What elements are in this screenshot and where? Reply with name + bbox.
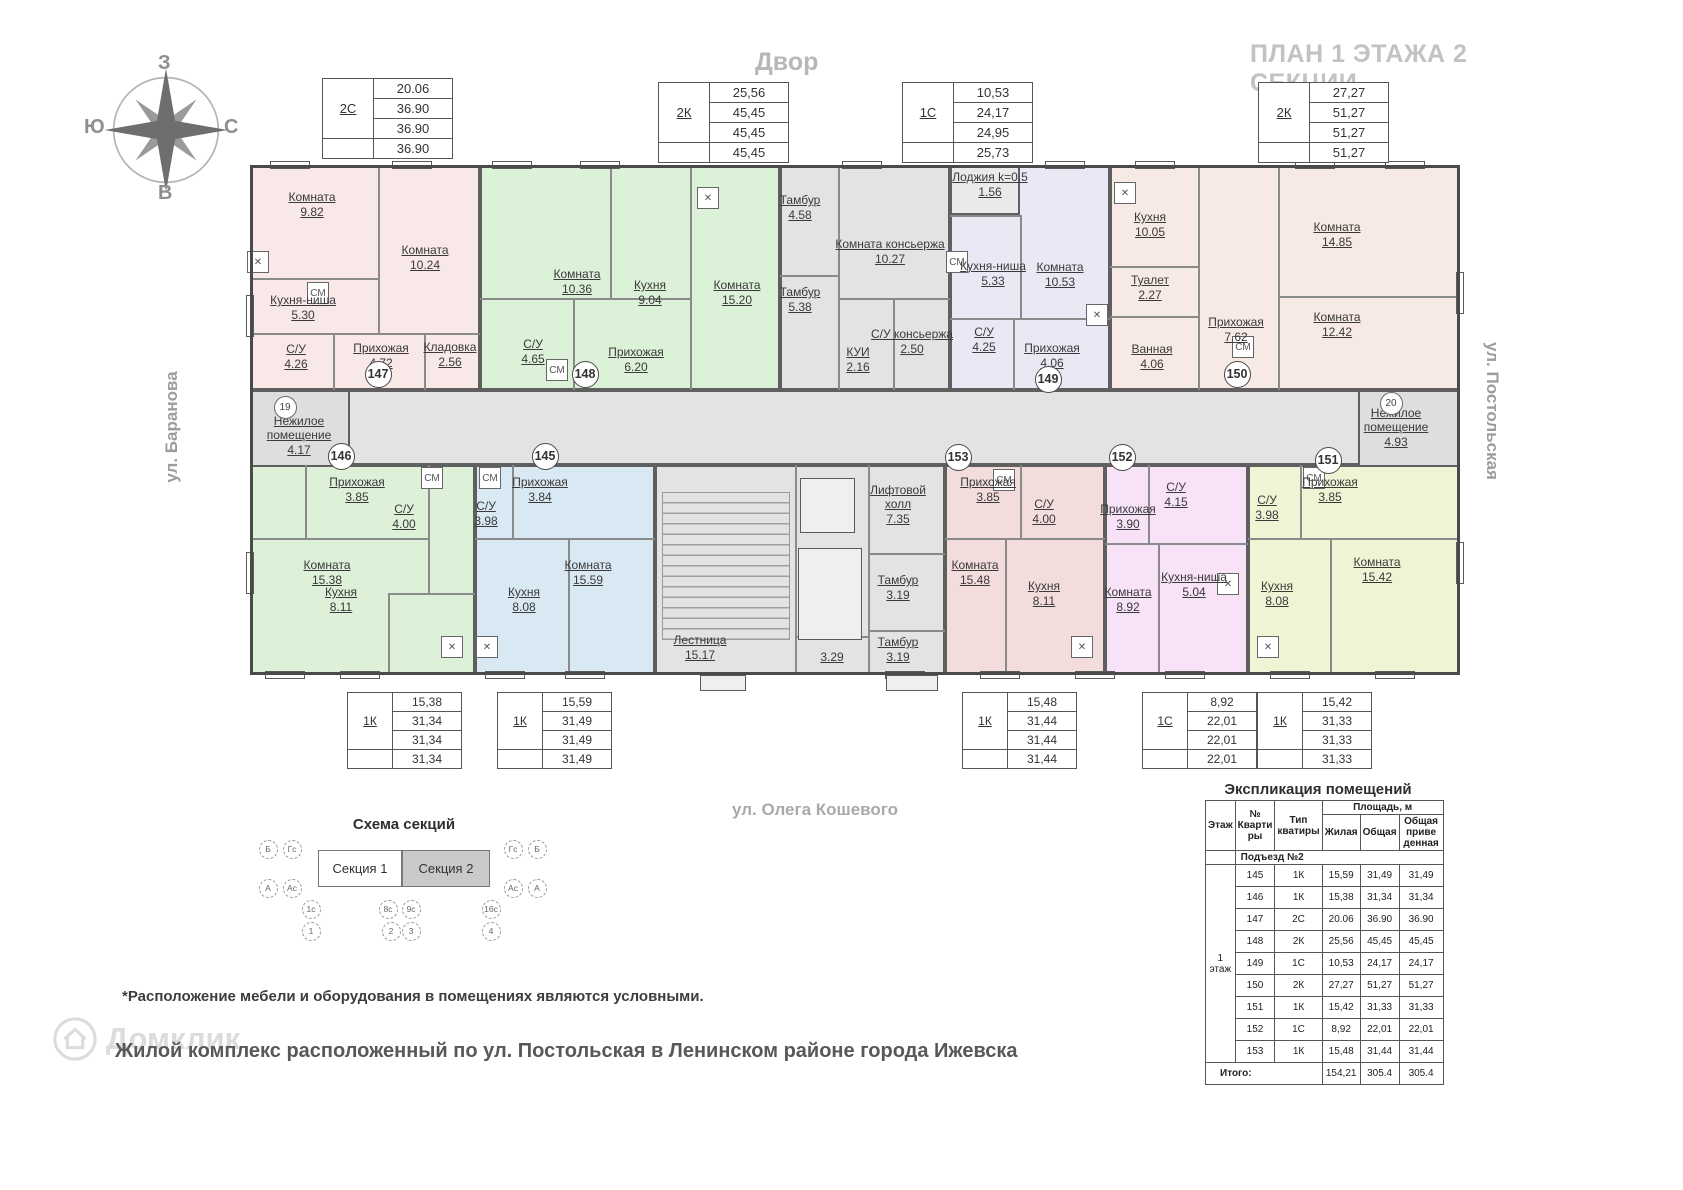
axis-circle-8с: 8с xyxy=(379,900,398,919)
partition-wall xyxy=(945,538,1105,540)
partition-wall xyxy=(1278,296,1460,298)
room-label: Прихожая3.84 xyxy=(465,475,615,504)
room-label: Комната15.42 xyxy=(1302,555,1452,584)
window-mark xyxy=(492,161,532,169)
explication-col-reduced: Общая приве денная xyxy=(1399,815,1443,851)
apartment-number-badge: 147 xyxy=(365,361,392,388)
schema-title: Схема секций xyxy=(318,816,490,833)
window-mark xyxy=(392,161,432,169)
room-label: Комната14.85 xyxy=(1262,220,1412,249)
partition-wall xyxy=(1105,543,1248,545)
axis-circle-Гс: Гс xyxy=(283,840,302,859)
schema-section-2: Секция 2 xyxy=(402,850,490,887)
room-number-badge: 20 xyxy=(1380,392,1403,415)
axis-circle-2: 2 xyxy=(382,922,401,941)
room-label: Тамбур5.38 xyxy=(725,285,875,314)
explication-total-area: 305.4 xyxy=(1360,1063,1399,1085)
apartment-number-badge: 151 xyxy=(1315,447,1342,474)
area-table-1К: 1К15,3831,3431,3431,34 xyxy=(347,692,462,769)
explication-total-living: 154,21 xyxy=(1322,1063,1360,1085)
axis-circle-Б: Б xyxy=(528,840,547,859)
partition-wall xyxy=(795,465,797,675)
axis-circle-1с: 1с xyxy=(302,900,321,919)
apartment-number-badge: 149 xyxy=(1035,366,1062,393)
room-label: Комната15.38 xyxy=(252,558,402,587)
axis-circle-3: 3 xyxy=(402,922,421,941)
room-number-badge: 19 xyxy=(274,396,297,419)
window-mark xyxy=(1385,161,1425,169)
window-mark xyxy=(980,671,1020,679)
axis-circle-16с: 16с xyxy=(482,900,501,919)
apartment-number-badge: 153 xyxy=(945,444,972,471)
window-mark xyxy=(1270,671,1310,679)
partition-wall xyxy=(250,538,430,540)
partition-wall xyxy=(1248,538,1460,540)
stove-icon: ✕ xyxy=(247,251,269,273)
window-mark xyxy=(485,671,525,679)
axis-circle-9с: 9с xyxy=(402,900,421,919)
project-title: Жилой комплекс расположенный по ул. Пост… xyxy=(115,1040,1018,1063)
explication-row-151: 1511К15,4231,3331,33 xyxy=(1206,997,1444,1019)
window-mark xyxy=(340,671,380,679)
partition-wall xyxy=(250,278,380,280)
room-label: Лоджия k=0.51.56 xyxy=(915,170,1065,199)
window-mark xyxy=(1045,161,1085,169)
explication-entrance-row: Подъезд №2 xyxy=(1235,851,1443,865)
partition-wall xyxy=(868,630,945,632)
explication-total-row: Итого: 154,21 305.4 305.4 xyxy=(1206,1063,1444,1085)
explication-col-living: Жилая xyxy=(1322,815,1360,851)
room-label: Ванная4.06 xyxy=(1077,342,1227,371)
apartment-number-badge: 145 xyxy=(532,443,559,470)
explication-row-147: 1472С20.0636.9036.90 xyxy=(1206,909,1444,931)
partition-wall xyxy=(475,538,655,540)
partition-wall xyxy=(868,553,945,555)
area-table-1К: 1К15,4831,4431,4431,44 xyxy=(962,692,1077,769)
stove-icon: ✕ xyxy=(697,187,719,209)
structure-box xyxy=(886,675,938,691)
explication-total-reduced: 305.4 xyxy=(1399,1063,1443,1085)
area-table-2К: 2К27,2751,2751,2751,27 xyxy=(1258,82,1389,163)
area-table-1К: 1К15,4231,3331,3331,33 xyxy=(1257,692,1372,769)
window-mark xyxy=(1456,542,1464,584)
axis-circle-А: А xyxy=(528,879,547,898)
axis-circle-Б: Б xyxy=(259,840,278,859)
explication-row-145: 1 этаж1451К15,5931,4931,49 xyxy=(1206,865,1444,887)
stove-icon: ✕ xyxy=(1114,182,1136,204)
area-table-1С: 1С8,9222,0122,0122,01 xyxy=(1142,692,1257,769)
explication-row-153: 1531К15,4831,4431,44 xyxy=(1206,1041,1444,1063)
structure-box xyxy=(700,675,746,691)
window-mark xyxy=(270,161,310,169)
axis-circle-1: 1 xyxy=(302,922,321,941)
axis-circle-А: А xyxy=(259,879,278,898)
axis-circle-4: 4 xyxy=(482,922,501,941)
room-label: Комната15.59 xyxy=(513,558,663,587)
axis-circle-Ас: Ас xyxy=(283,879,302,898)
window-mark xyxy=(1165,671,1205,679)
explication-total-label: Итого: xyxy=(1206,1063,1323,1085)
area-table-2С: 2С20.0636.9036.9036.90 xyxy=(322,78,453,159)
room-label: Лестница15.17 xyxy=(625,633,775,662)
room-label: Комната10.24 xyxy=(350,243,500,272)
stove-icon: ✕ xyxy=(476,636,498,658)
area-table-2К: 2К25,5645,4545,4545,45 xyxy=(658,82,789,163)
explication-col-total: Общая xyxy=(1360,815,1399,851)
apartment-number-badge: 152 xyxy=(1109,444,1136,471)
room-label: Комната12.42 xyxy=(1262,310,1412,339)
room-label: Кухня8.08 xyxy=(449,585,599,614)
explication-row-148: 1482К25,5645,4545,45 xyxy=(1206,931,1444,953)
stove-icon: ✕ xyxy=(1257,636,1279,658)
window-mark xyxy=(580,161,620,169)
apartment-number-badge: 150 xyxy=(1224,361,1251,388)
stove-icon: ✕ xyxy=(1071,636,1093,658)
window-mark xyxy=(1075,671,1115,679)
explication-row-149: 1491С10,5324,1724,17 xyxy=(1206,953,1444,975)
explication-col-area-group: Площадь, м xyxy=(1322,801,1443,815)
room-label: Кухня8.11 xyxy=(266,585,416,614)
apartment-number-badge: 148 xyxy=(572,361,599,388)
furniture-note: *Расположение мебели и оборудования в по… xyxy=(122,988,704,1005)
explication-table: Этаж № Кварти ры Тип кватиры Площадь, м … xyxy=(1205,800,1444,1085)
explication-col-floor: Этаж xyxy=(1206,801,1236,851)
window-mark xyxy=(1135,161,1175,169)
unit-region-corridor xyxy=(250,390,1460,465)
explication-row-150: 1502К27,2751,2751,27 xyxy=(1206,975,1444,997)
room-label: Комната8.92 xyxy=(1053,585,1203,614)
staircase xyxy=(662,492,790,640)
window-mark xyxy=(265,671,305,679)
room-label: Комната9.82 xyxy=(237,190,387,219)
axis-circle-Гс: Гс xyxy=(504,840,523,859)
explication-title: Экспликация помещений xyxy=(1205,781,1431,798)
explication-row-146: 1461К15,3831,3431,34 xyxy=(1206,887,1444,909)
room-label: Прихожая3.85 xyxy=(282,475,432,504)
window-mark xyxy=(565,671,605,679)
window-mark xyxy=(842,161,882,169)
partition-wall xyxy=(950,215,1020,217)
schema-section-1: Секция 1 xyxy=(318,850,402,887)
floorplan-page: Двор ПЛАН 1 ЭТАЖА 2 СЕКЦИИ З С В Ю ул. Б… xyxy=(0,0,1683,1190)
area-table-1С: 1С10,5324,1724,9525,73 xyxy=(902,82,1033,163)
room-label: Кухня10.05 xyxy=(1075,210,1225,239)
room-label: Туалет2.27 xyxy=(1075,273,1225,302)
stove-icon: ✕ xyxy=(1086,304,1108,326)
window-mark xyxy=(1375,671,1415,679)
stove-icon: ✕ xyxy=(441,636,463,658)
room-label: С/У3.98 xyxy=(1192,493,1342,522)
explication-col-type: Тип кватиры xyxy=(1275,801,1322,851)
explication-row-152: 1521С8,9222,0122,01 xyxy=(1206,1019,1444,1041)
partition-wall xyxy=(780,275,838,277)
room-label: Тамбур4.58 xyxy=(725,193,875,222)
room-label: Кухня-ниша5.30 xyxy=(228,293,378,322)
axis-circle-Ас: Ас xyxy=(504,879,523,898)
window-mark xyxy=(1456,272,1464,314)
room-label: 3.29 xyxy=(757,650,907,665)
explication-col-number: № Кварти ры xyxy=(1235,801,1275,851)
partition-wall xyxy=(1278,165,1280,390)
apartment-number-badge: 146 xyxy=(328,443,355,470)
area-table-1К: 1К15,5931,4931,4931,49 xyxy=(497,692,612,769)
partition-wall xyxy=(250,333,480,335)
domclick-house-icon xyxy=(52,1016,98,1062)
